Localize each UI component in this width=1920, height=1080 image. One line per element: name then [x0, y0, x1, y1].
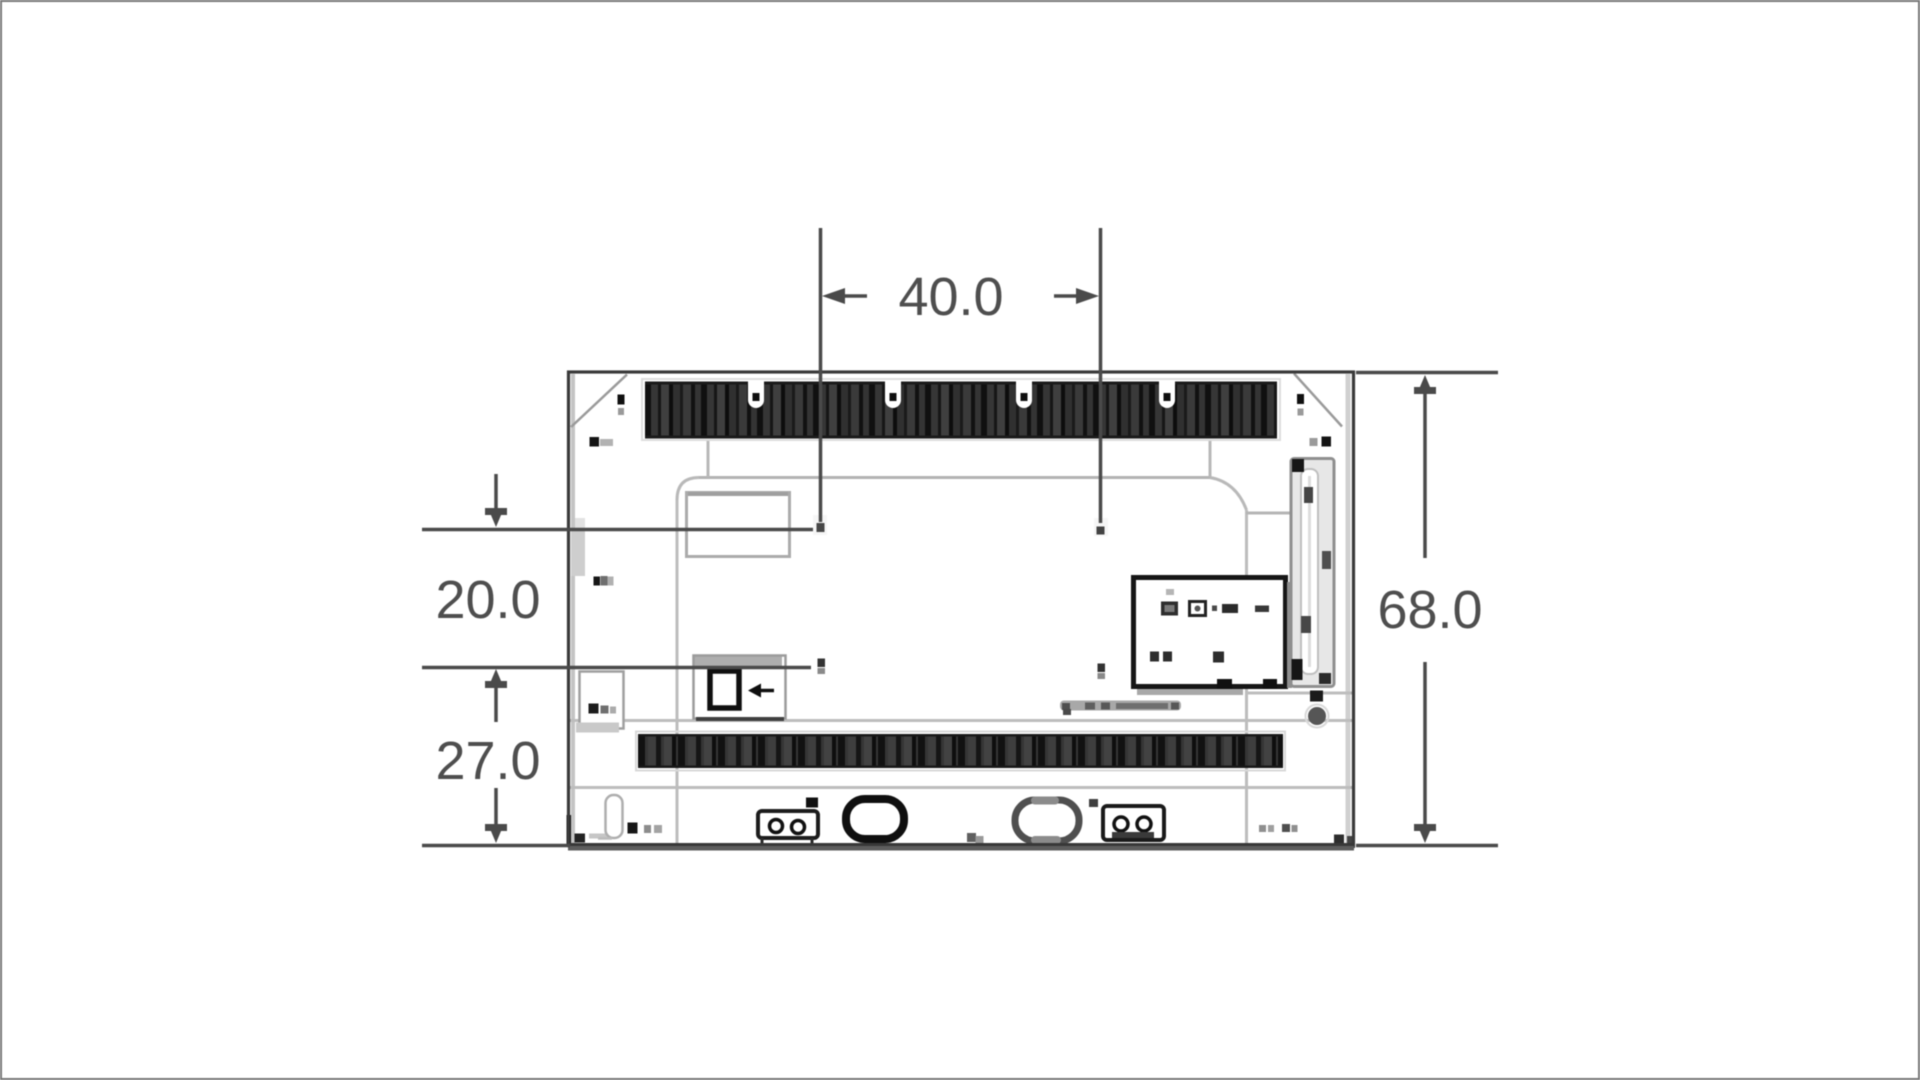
svg-text:20.0: 20.0 — [435, 570, 540, 630]
svg-text:40.0: 40.0 — [898, 267, 1003, 327]
svg-text:68.0: 68.0 — [1377, 580, 1482, 640]
svg-text:27.0: 27.0 — [435, 731, 540, 791]
